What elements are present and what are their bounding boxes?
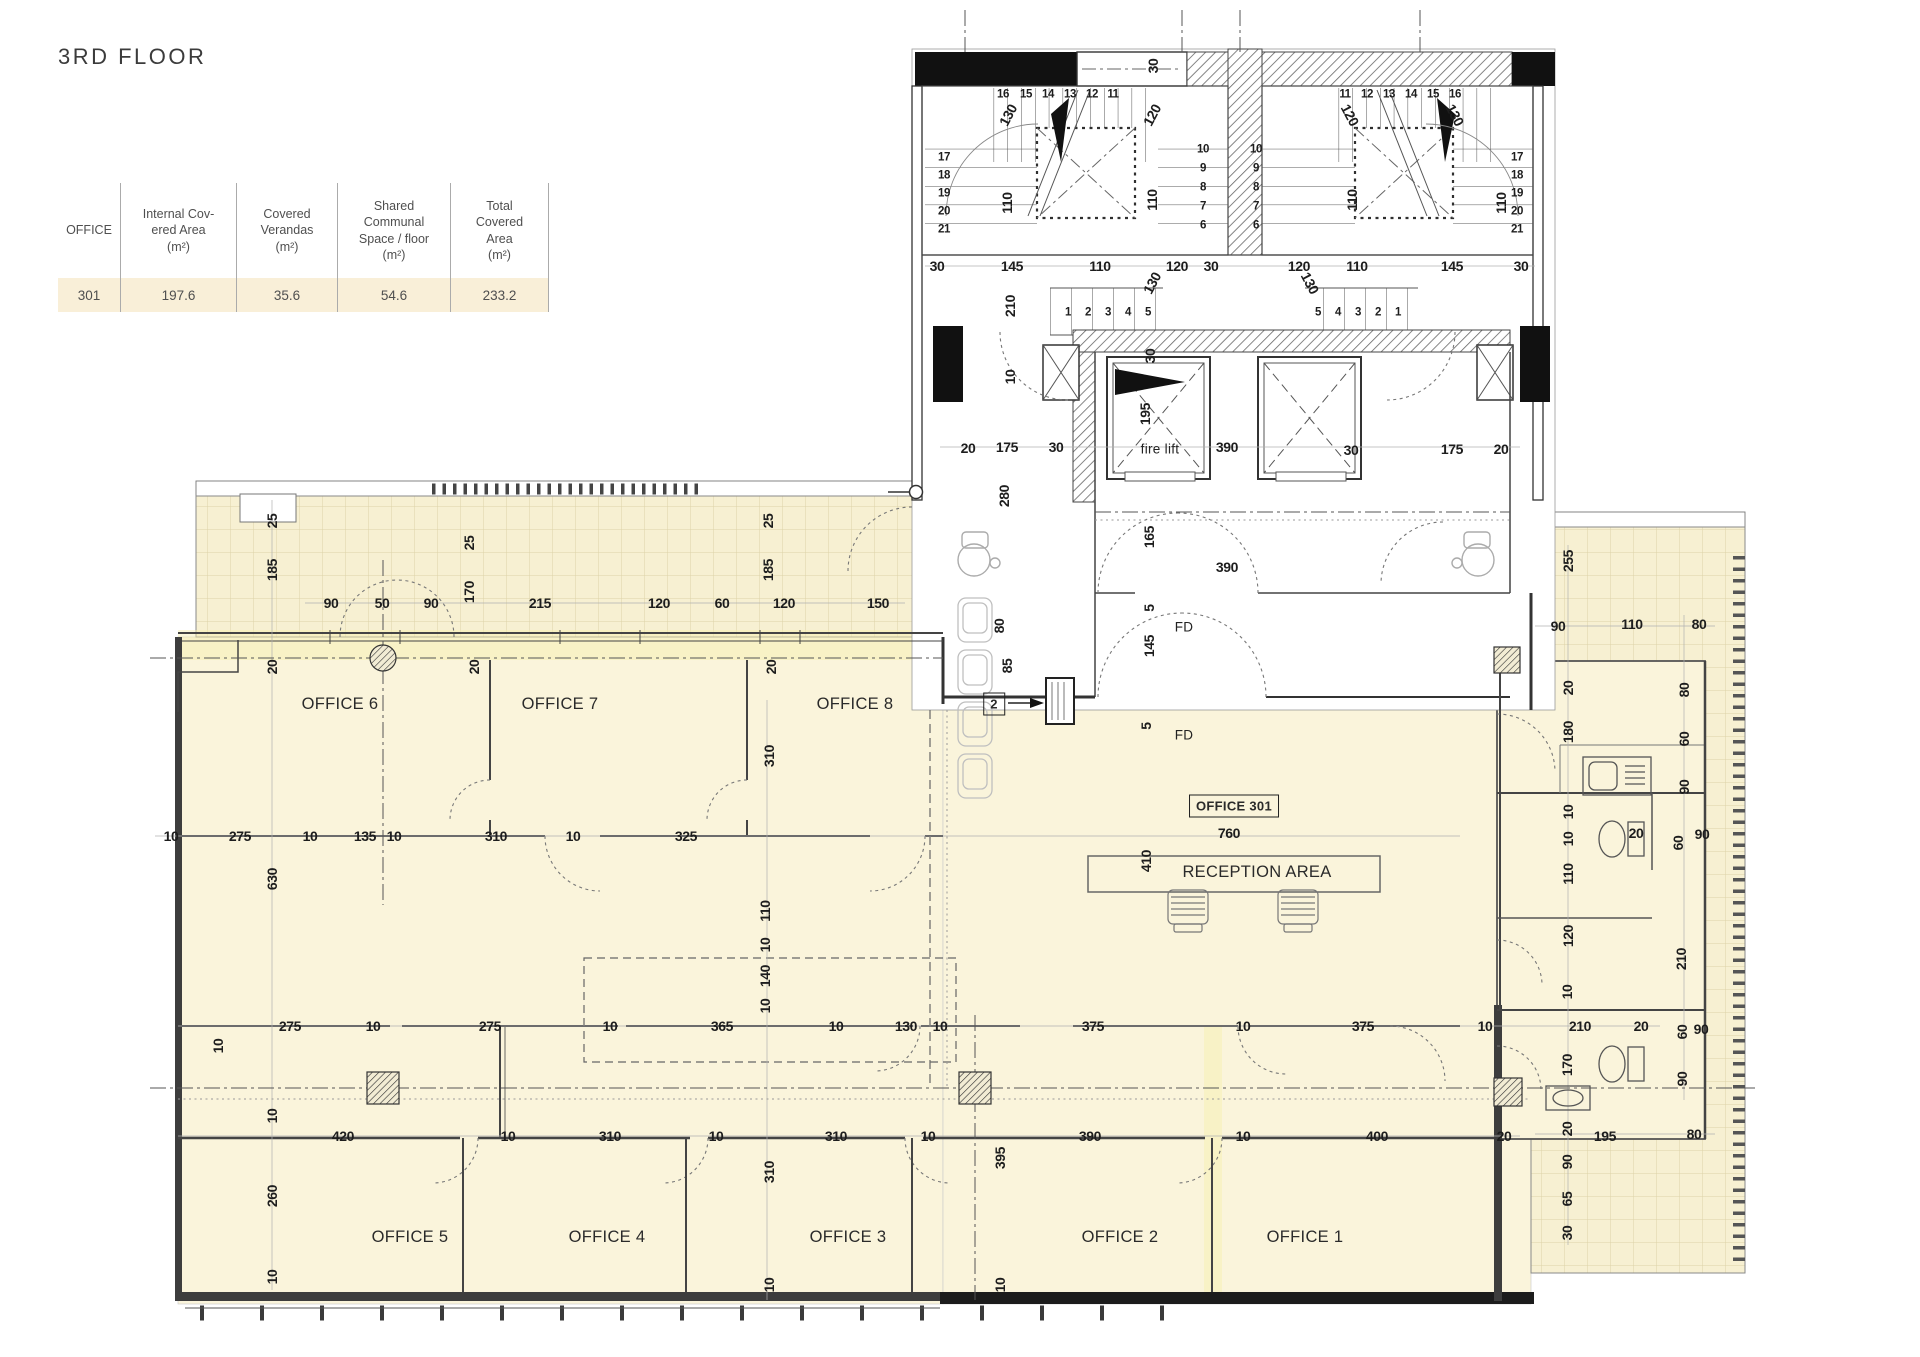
floorplan-drawing [0,0,1920,1357]
floorplan-page: 3RD FLOOR OFFICE Internal Cov- ered Area… [0,0,1920,1357]
floorplan: 1615141312111112131415161718192021109876… [0,0,1920,1357]
